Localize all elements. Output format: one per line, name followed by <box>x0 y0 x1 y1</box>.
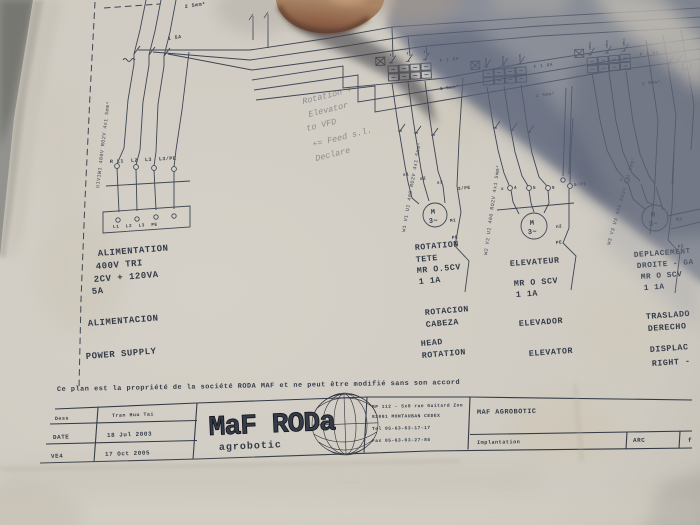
svg-text:1 1A: 1 1A <box>418 275 441 287</box>
svg-text:M1: M1 <box>450 217 457 224</box>
svg-text:DATE: DATE <box>53 433 70 441</box>
svg-text:n2: n2 <box>556 223 563 230</box>
svg-text:Dess: Dess <box>55 416 69 422</box>
svg-text:TETE: TETE <box>415 253 438 265</box>
svg-text:HEAD: HEAD <box>420 337 443 349</box>
svg-text:M: M <box>431 209 436 217</box>
svg-text:5: 5 <box>533 185 537 191</box>
svg-text:9: 9 <box>552 185 556 191</box>
svg-text:x: x <box>501 187 505 192</box>
svg-text:VE4: VE4 <box>51 453 64 460</box>
svg-text:Tel 05-63-63-17-17: Tel 05-63-63-17-17 <box>372 425 431 432</box>
svg-text:PE: PE <box>556 239 563 246</box>
svg-text:x3: x3 <box>437 179 444 186</box>
svg-text:f: f <box>688 437 692 444</box>
svg-text:x1: x1 <box>403 171 410 178</box>
svg-text:1 1A: 1 1A <box>516 288 539 300</box>
svg-text:5A: 5A <box>91 286 104 297</box>
svg-text:Fax 05-63-63-27-85: Fax 05-63-63-27-85 <box>372 437 431 444</box>
svg-text:82001 MONTAUBAN CEDEX: 82001 MONTAUBAN CEDEX <box>372 413 441 420</box>
svg-text:M: M <box>530 220 535 228</box>
svg-text:3~: 3~ <box>429 217 439 226</box>
svg-text:x2: x2 <box>420 175 427 182</box>
svg-text:3~: 3~ <box>528 228 538 237</box>
svg-text:Implantation: Implantation <box>477 439 520 446</box>
svg-text:MaF RODa: MaF RODa <box>208 407 337 444</box>
svg-text:ARC: ARC <box>633 437 645 444</box>
svg-text:MAF AGROBOTIC: MAF AGROBOTIC <box>477 408 537 417</box>
svg-text:4: 4 <box>514 185 518 191</box>
